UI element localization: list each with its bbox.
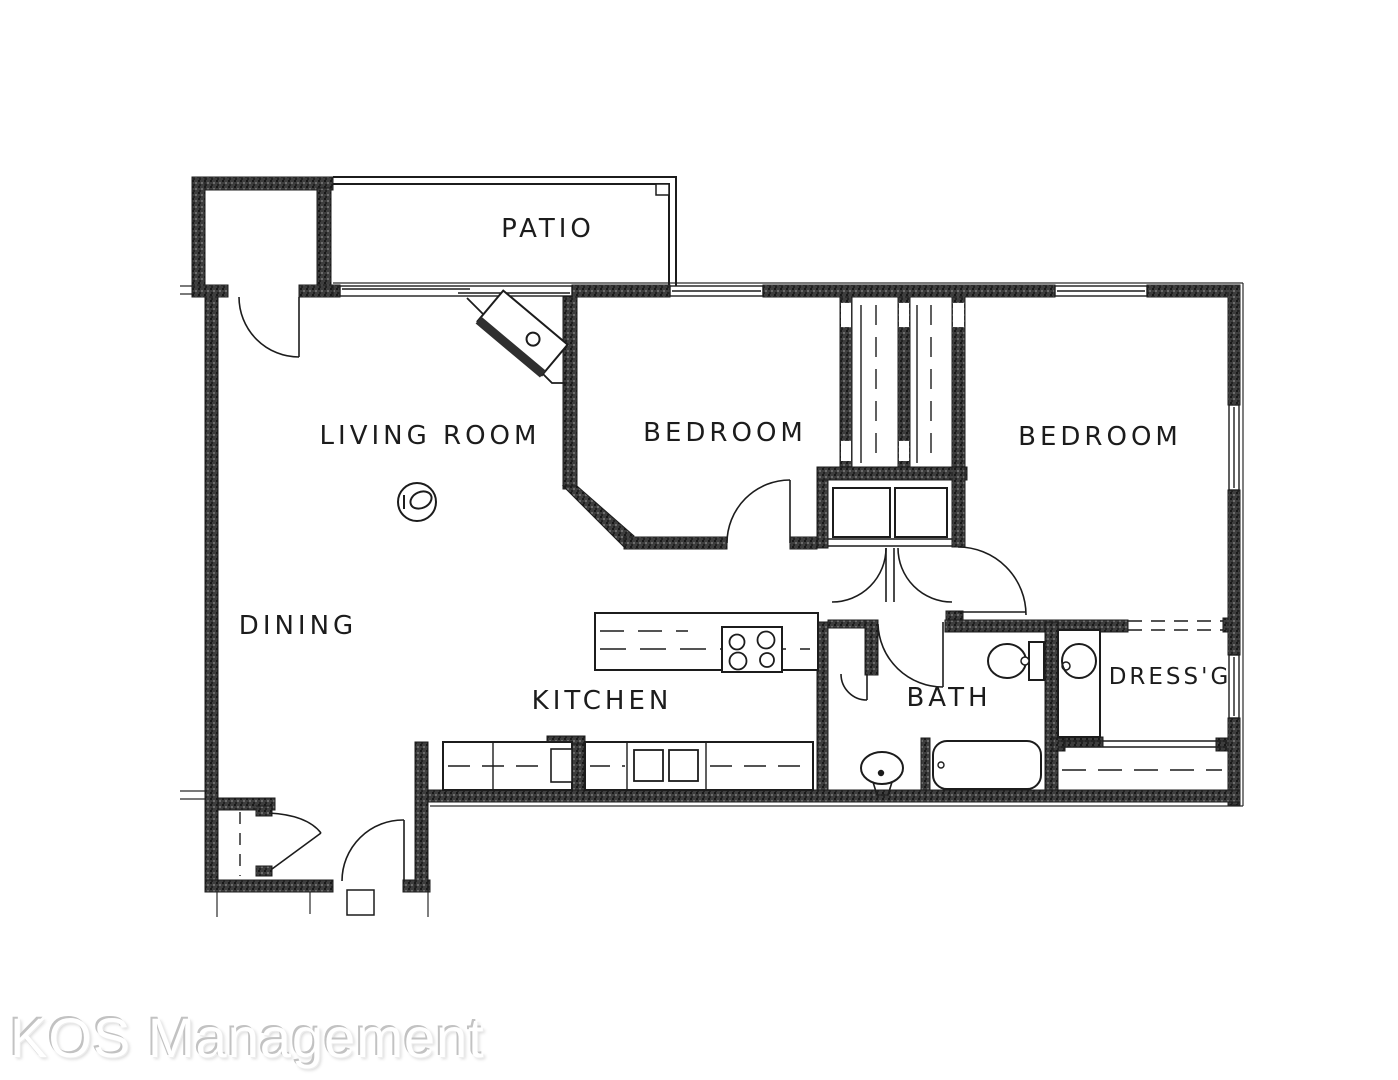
tub-apron (921, 738, 930, 790)
floor-plan-drawing: PATIO LIVING ROOM BEDROOM BEDROOM DINING… (0, 0, 1398, 1080)
closet-wall (817, 480, 828, 548)
left-wall (205, 297, 218, 882)
bottom-wall (415, 790, 1240, 802)
room-label-bedroom-2: BEDROOM (1018, 422, 1182, 452)
wall (192, 285, 228, 297)
utility-closet-door (841, 674, 867, 700)
right-wall (1228, 285, 1240, 405)
room-label-kitchen: KITCHEN (532, 686, 673, 716)
closet-shelf (895, 488, 947, 537)
bedroom2-top-window (1055, 286, 1147, 296)
utility-closet-wall (865, 620, 878, 675)
bedroom2-side-window (1229, 405, 1239, 490)
patio-closet-door (239, 297, 299, 357)
bedroom1-wall (624, 537, 727, 549)
ceiling-light (398, 483, 436, 521)
hinge-block (256, 806, 272, 816)
room-label-bedroom-1: BEDROOM (643, 418, 807, 448)
dishwasher (551, 749, 572, 782)
bedroom1-wall (790, 537, 817, 549)
counter-stub-wall (572, 744, 585, 790)
bedroom2-door (958, 547, 1026, 615)
top-wall (572, 285, 670, 297)
sliding-glass-door (340, 286, 572, 296)
bathtub (933, 741, 1041, 789)
range-cooktop (722, 627, 782, 672)
hall-closet-double-doors (832, 548, 952, 602)
patio-closet-wall (317, 188, 331, 287)
hinge-block (256, 866, 272, 876)
pedestal-sink (861, 752, 903, 795)
right-wall (1228, 490, 1240, 655)
entry-closet-door (269, 813, 321, 869)
toilet (988, 642, 1044, 680)
top-wall (333, 285, 340, 297)
closet-block (1216, 738, 1228, 751)
front-door (342, 820, 404, 881)
room-label-dressing: DRESS'G (1109, 664, 1232, 690)
entry-side-wall (415, 742, 428, 892)
entry-step (347, 890, 374, 915)
room-label-bath: BATH (906, 683, 991, 713)
room-label-patio: PATIO (501, 214, 595, 244)
bath-door (878, 622, 943, 687)
patio-closet-wall (192, 177, 205, 297)
entry-bottom-wall (205, 880, 333, 892)
closet-shelf (833, 488, 890, 537)
wall (1223, 618, 1228, 632)
kitchen-upper-counter (595, 613, 818, 670)
floor-plan-page: PATIO LIVING ROOM BEDROOM BEDROOM DINING… (0, 0, 1398, 1080)
patio-closet-wall (192, 177, 333, 190)
room-label-dining: DINING (239, 611, 357, 641)
livingroom-bedroom-wall (563, 297, 577, 489)
exterior-outline-lines (180, 283, 1243, 917)
angled-wall (563, 486, 634, 548)
corner-fireplace (467, 291, 568, 383)
room-label-living-room: LIVING ROOM (320, 421, 541, 451)
closet-wall (817, 467, 967, 480)
bedroom1-window (670, 286, 763, 296)
bedroom1-door (727, 480, 790, 543)
top-wall (763, 285, 1055, 297)
bath-dressing-wall (1045, 622, 1058, 790)
top-wall (1147, 285, 1228, 297)
vanity-sink (1058, 630, 1100, 737)
watermark: KOS Management (10, 1005, 485, 1070)
closet-block (1053, 738, 1065, 751)
bedroom2-wall (952, 467, 965, 547)
wall (299, 285, 333, 297)
